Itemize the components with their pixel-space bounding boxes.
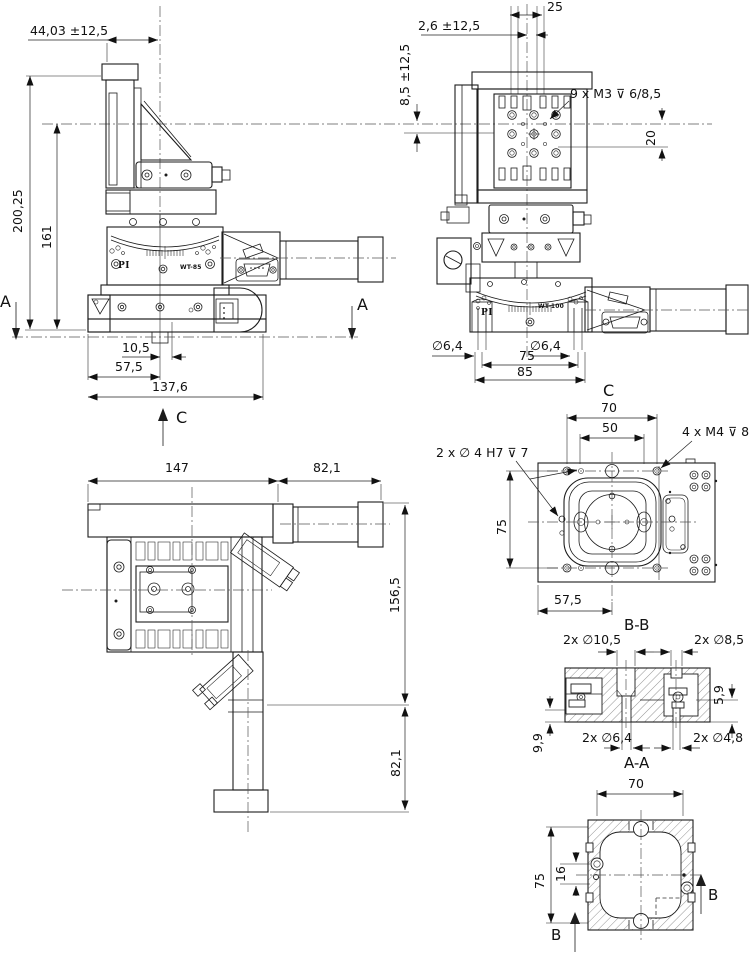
- dim-aa-width: 70: [628, 778, 644, 791]
- dim-bore-6-4: 2x ∅6,4: [582, 732, 632, 745]
- dim-center-height: 161: [41, 225, 54, 249]
- dim-bore-10-5: 2x ∅10,5: [563, 634, 621, 647]
- dim-base-left: 57,5: [115, 361, 143, 374]
- thread-note-m3: 9 x M3 ⊽ 6/8,5: [570, 88, 661, 101]
- section-a-label-right: A: [357, 297, 368, 313]
- drawing-sheet: 44,03 ±12,5 200,25 161 A A 10,5 57,5 137…: [0, 0, 750, 955]
- dim-aa-height: 75: [534, 873, 547, 889]
- dim-pattern-width: 70: [601, 402, 617, 415]
- shared-centerlines: [42, 4, 712, 358]
- dim-platform-width: 25: [547, 1, 563, 14]
- thread-note-m4: 4 x M4 ⊽ 8: [682, 426, 749, 439]
- front-view-lineart: [12, 40, 396, 446]
- dim-height-right: 156,5: [389, 577, 402, 613]
- dim-total-height: 200,25: [12, 189, 25, 233]
- dim-platform-offset: 2,6 ±12,5: [418, 20, 480, 33]
- section-bb-title: B-B: [624, 618, 649, 633]
- m3-hole-pattern: [508, 111, 561, 158]
- dim-step-9-9: 9,9: [532, 733, 545, 753]
- view-c-lineart: [506, 414, 717, 615]
- dim-body-length: 147: [165, 462, 189, 475]
- dim-aa-hole-offset: 16: [555, 866, 568, 882]
- pi-logo-side: PI: [481, 309, 493, 318]
- drawing-canvas: [0, 0, 750, 955]
- view-c-title: C: [603, 383, 614, 399]
- dim-hole-depth: 20: [645, 130, 658, 146]
- dim-center-offset: 57,5: [554, 594, 582, 607]
- section-b-label-bottom: B: [551, 928, 561, 943]
- dim-base-depth: 85: [517, 366, 533, 379]
- dim-bore-4-8: 2x ∅4,8: [693, 732, 743, 745]
- dim-step-5-9: 5,9: [713, 685, 726, 705]
- dim-inner-width: 50: [602, 422, 618, 435]
- section-a-label-left: A: [0, 294, 11, 310]
- plan-view-lineart: [62, 481, 409, 835]
- tilted-lower-bracket: [193, 652, 253, 710]
- section-aa-lineart: [546, 790, 706, 952]
- dim-foot-hole-left: ∅6,4: [432, 340, 463, 353]
- dim-base-width: 137,6: [152, 381, 188, 394]
- dim-bore-8-5: 2x ∅8,5: [694, 634, 744, 647]
- dim-foot-span: 75: [519, 350, 535, 363]
- rail-slots: [136, 542, 228, 648]
- side-view-lineart: [404, 6, 748, 383]
- dowel-note-h7: 2 x ∅ 4 H7 ⊽ 7: [436, 447, 529, 460]
- section-b-label-right: B: [708, 888, 718, 903]
- dim-pattern-height: 75: [496, 519, 509, 535]
- dim-motor-length: 82,1: [313, 462, 341, 475]
- dim-bracket-offset: 44,03 ±12,5: [30, 25, 108, 38]
- pi-logo-front: PI: [118, 262, 130, 271]
- model-wt100-label: WT-100: [538, 304, 564, 310]
- model-wt85-label: WT-85: [180, 265, 202, 271]
- view-c-arrow-label: C: [176, 410, 187, 426]
- tilted-motor-bracket: [231, 533, 300, 592]
- dim-vertical-travel: 8,5 ±12,5: [399, 44, 412, 106]
- section-aa-title: A-A: [624, 756, 649, 771]
- dim-pivot-offset: 10,5: [122, 342, 150, 355]
- dim-column-height: 82,1: [390, 749, 403, 777]
